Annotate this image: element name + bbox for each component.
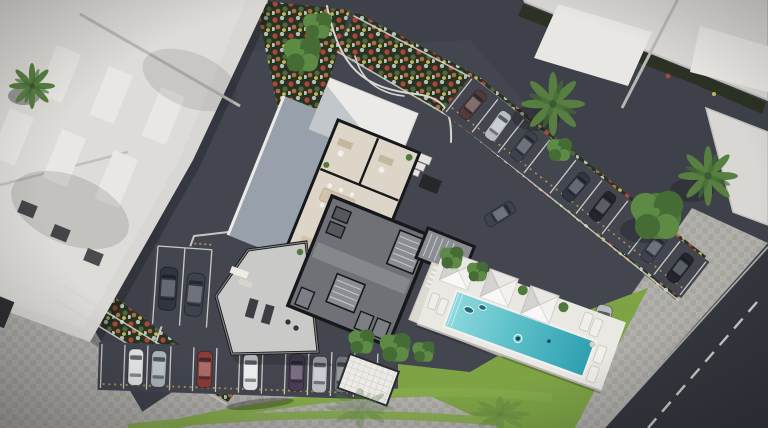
aerial-site-render xyxy=(0,0,768,428)
vignette-overlay xyxy=(0,0,768,428)
